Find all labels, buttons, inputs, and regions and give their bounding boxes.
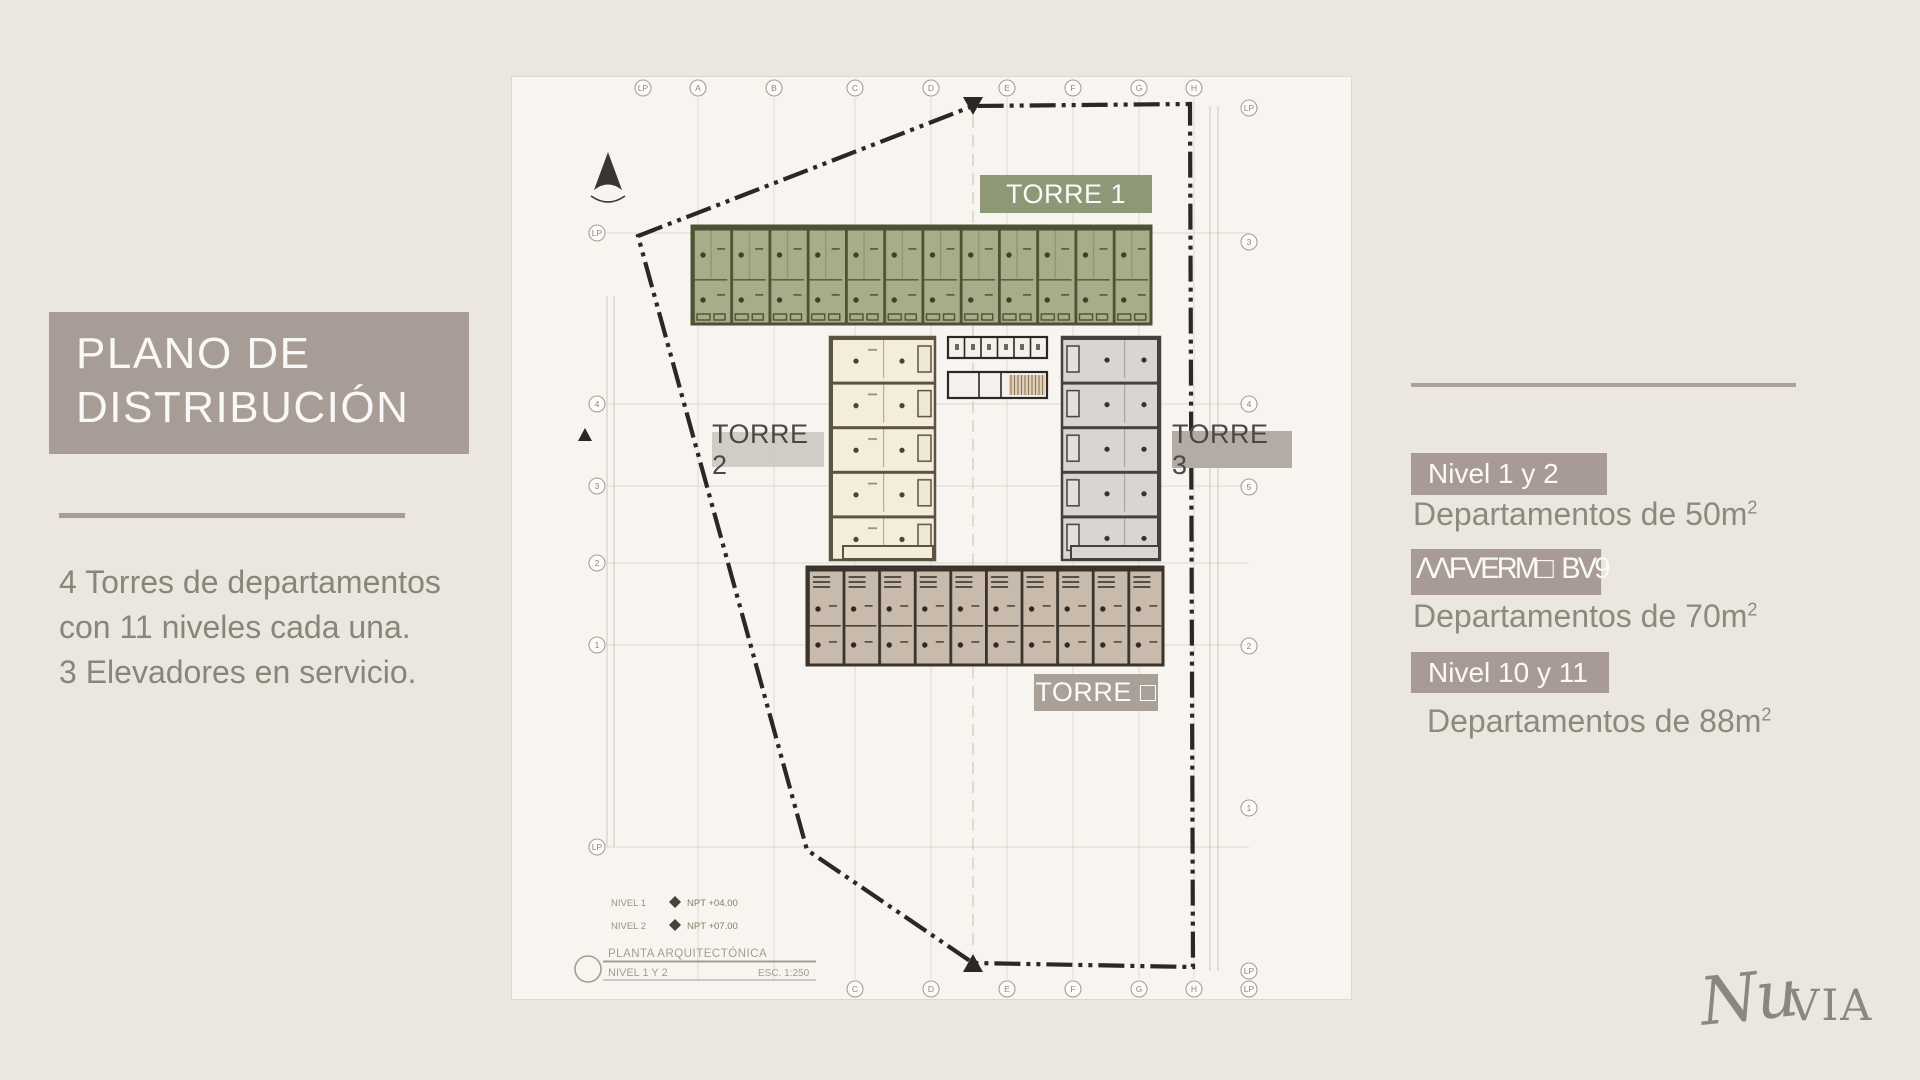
- grid-bubble-label: G: [1136, 83, 1143, 93]
- legend-badge-nivel-3-9: ΛΛFVERM□ BV9: [1411, 549, 1601, 595]
- tower-3-balcony-strip: [1071, 546, 1159, 559]
- grid-bubble-label: A: [695, 83, 701, 93]
- brand-logo-script: Nu: [1697, 961, 1799, 1035]
- grid-bubble-label: 1: [1247, 803, 1252, 813]
- titleblock-scale: ESC. 1:250: [758, 968, 810, 979]
- legend-desc-70m-text: Departamentos de 70m: [1413, 598, 1747, 634]
- legend-desc-88m-text: Departamentos de 88m: [1427, 703, 1761, 739]
- grid-bubble-label: E: [1004, 83, 1010, 93]
- intro-line-2: con 11 niveles cada una.: [59, 605, 441, 650]
- tower-4-block: [807, 567, 1163, 665]
- grid-bubble-label: H: [1191, 83, 1197, 93]
- level-1-name: NIVEL 1: [611, 898, 646, 909]
- title-divider: [59, 513, 405, 518]
- legend-divider: [1411, 383, 1796, 387]
- grid-bubble-label: C: [852, 984, 858, 994]
- level-2-name: NIVEL 2: [611, 921, 646, 932]
- tower-2-balcony-strip: [843, 546, 933, 559]
- floorplan-drawing: LPABCDEFGHLPLP4321LP34521LPCDEFGHLP NIVE…: [511, 76, 1352, 1000]
- legend-desc-50m: Departamentos de 50m2: [1413, 496, 1757, 533]
- brand-logo: Nu VIA: [1700, 966, 1873, 1031]
- grid-bubble-label: 3: [595, 481, 600, 491]
- intro-line-3: 3 Elevadores en servicio.: [59, 650, 441, 695]
- grid-bubble-label: 4: [1247, 399, 1252, 409]
- brand-logo-serif: VIA: [1788, 981, 1873, 1031]
- legend-desc-70m: Departamentos de 70m2: [1413, 598, 1757, 635]
- grid-bubble-label: H: [1191, 984, 1197, 994]
- floorplan-sheet: LPABCDEFGHLPLP4321LP34521LPCDEFGHLP NIVE…: [511, 76, 1352, 1000]
- torre-2-label: TORRE 2: [712, 432, 824, 467]
- grid-bubble-label: 4: [595, 399, 600, 409]
- titleblock-title: PLANTA ARQUITECTÓNICA: [608, 947, 767, 960]
- grid-bubble-label: D: [928, 984, 934, 994]
- grid-bubble-label: 1: [595, 640, 600, 650]
- legend-badge-nivel-1-2: Nivel 1 y 2: [1411, 453, 1607, 495]
- grid-bubble-label: LP: [638, 83, 649, 93]
- torre-3-label: TORRE 3: [1172, 431, 1292, 468]
- title-box: PLANO DE DISTRIBUCIÓN: [49, 312, 469, 454]
- torre-4-label: TORRE □: [1034, 674, 1158, 711]
- slide-canvas: PLANO DE DISTRIBUCIÓN 4 Torres de depart…: [0, 0, 1920, 1080]
- grid-bubble-label: 2: [595, 558, 600, 568]
- titleblock-subtitle: NIVEL 1 Y 2: [608, 967, 668, 979]
- grid-bubble-label: 5: [1247, 482, 1252, 492]
- grid-bubble-label: F: [1070, 984, 1075, 994]
- grid-bubble-label: LP: [592, 842, 603, 852]
- legend-desc-50m-sup: 2: [1747, 497, 1757, 517]
- grid-bubble-label: 2: [1247, 641, 1252, 651]
- torre-1-label: TORRE 1: [980, 175, 1152, 213]
- grid-bubble-label: LP: [592, 228, 603, 238]
- legend-desc-50m-text: Departamentos de 50m: [1413, 496, 1747, 532]
- grid-bubble-label: B: [771, 83, 777, 93]
- grid-bubble-label: G: [1136, 984, 1143, 994]
- tower-1-block: [692, 226, 1151, 324]
- level-2-npt: NPT +07.00: [687, 921, 738, 932]
- level-1-npt: NPT +04.00: [687, 898, 738, 909]
- grid-bubble-label: 3: [1247, 237, 1252, 247]
- grid-bubble-label: C: [852, 83, 858, 93]
- grid-bubble-label: LP: [1244, 984, 1255, 994]
- intro-line-1: 4 Torres de departamentos: [59, 560, 441, 605]
- intro-text: 4 Torres de departamentos con 11 niveles…: [59, 560, 441, 695]
- grid-bubble-label: F: [1070, 83, 1075, 93]
- grid-bubble-label: D: [928, 83, 934, 93]
- tower-3-block: [1062, 337, 1160, 560]
- grid-bubble-label: LP: [1244, 966, 1255, 976]
- legend-desc-70m-sup: 2: [1747, 599, 1757, 619]
- grid-bubble-label: E: [1004, 984, 1010, 994]
- page-title: PLANO DE DISTRIBUCIÓN: [49, 312, 469, 435]
- tower-2-block: [830, 337, 935, 560]
- legend-desc-88m-sup: 2: [1761, 704, 1771, 724]
- legend-desc-88m: Departamentos de 88m2: [1427, 703, 1771, 740]
- grid-bubble-label: LP: [1244, 103, 1255, 113]
- legend-badge-nivel-10-11: Nivel 10 y 11: [1411, 652, 1609, 693]
